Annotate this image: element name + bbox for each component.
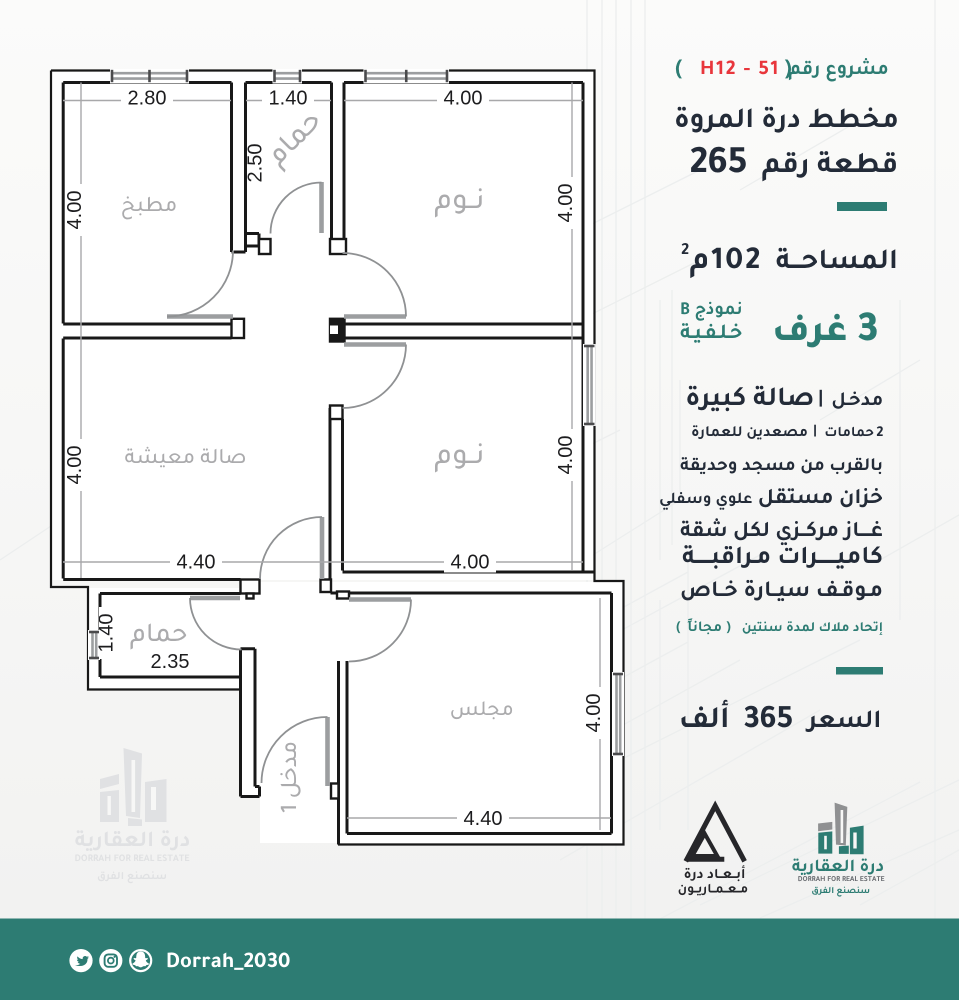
svg-text:4.00: 4.00 — [555, 184, 577, 223]
svg-text:1.40: 1.40 — [269, 88, 308, 110]
svg-text:1.40: 1.40 — [96, 614, 118, 653]
svg-text:4.00: 4.00 — [64, 191, 86, 230]
svg-text:4.00: 4.00 — [451, 552, 490, 574]
svg-text:4.00: 4.00 — [583, 694, 605, 733]
svg-text:2.50: 2.50 — [245, 144, 267, 183]
svg-text:2.35: 2.35 — [151, 651, 190, 673]
svg-text:4.40: 4.40 — [464, 808, 503, 830]
svg-text:4.00: 4.00 — [444, 88, 483, 110]
svg-text:2.80: 2.80 — [128, 88, 167, 110]
svg-text:4.40: 4.40 — [177, 552, 216, 574]
svg-text:4.00: 4.00 — [555, 436, 577, 475]
svg-text:4.00: 4.00 — [64, 446, 86, 485]
